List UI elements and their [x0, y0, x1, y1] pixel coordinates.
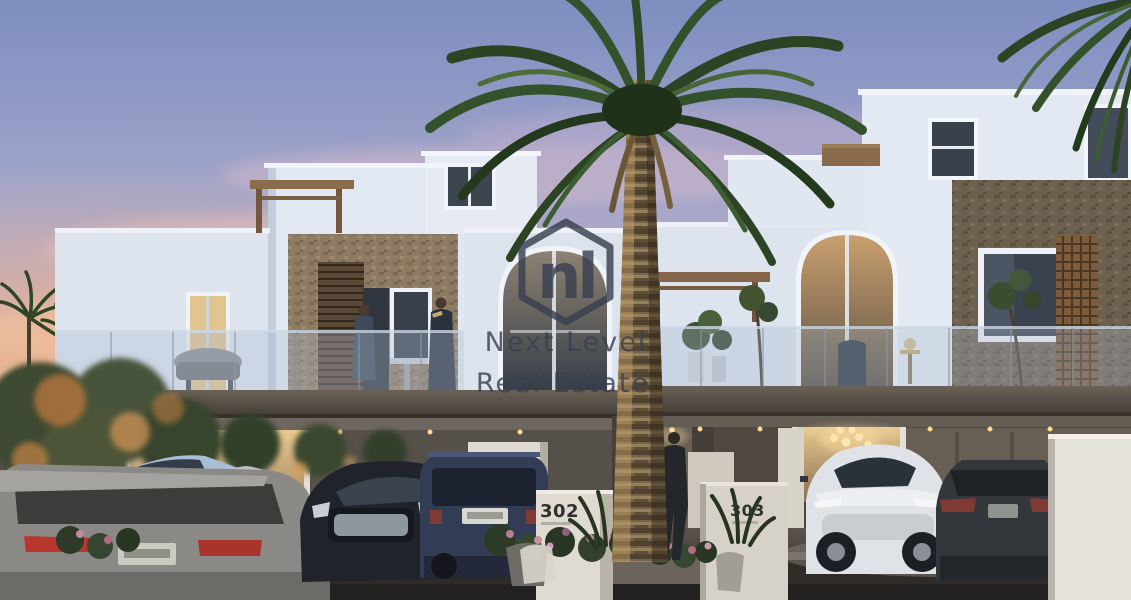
unit-number-302: 302 [540, 501, 579, 522]
suv-gray-foreground [0, 464, 330, 600]
logo-monogram: nl [537, 240, 594, 313]
real-estate-render: 302 303 [0, 0, 1131, 600]
rr-taillight-left [430, 510, 442, 524]
balcony-glass-railing-right [648, 326, 1131, 390]
light-cloth [520, 544, 556, 584]
wood-roof-box [822, 144, 880, 166]
brand-line-1: Next Level [485, 327, 648, 358]
window-right-1 [928, 118, 978, 180]
suv-taillight-right [198, 540, 262, 556]
black-mercedes-grille [334, 514, 408, 536]
brand-line-2: Real Estate [476, 368, 650, 399]
dark-sedan-taillight-left [940, 498, 976, 512]
white-partition-wall-right [1048, 434, 1131, 600]
